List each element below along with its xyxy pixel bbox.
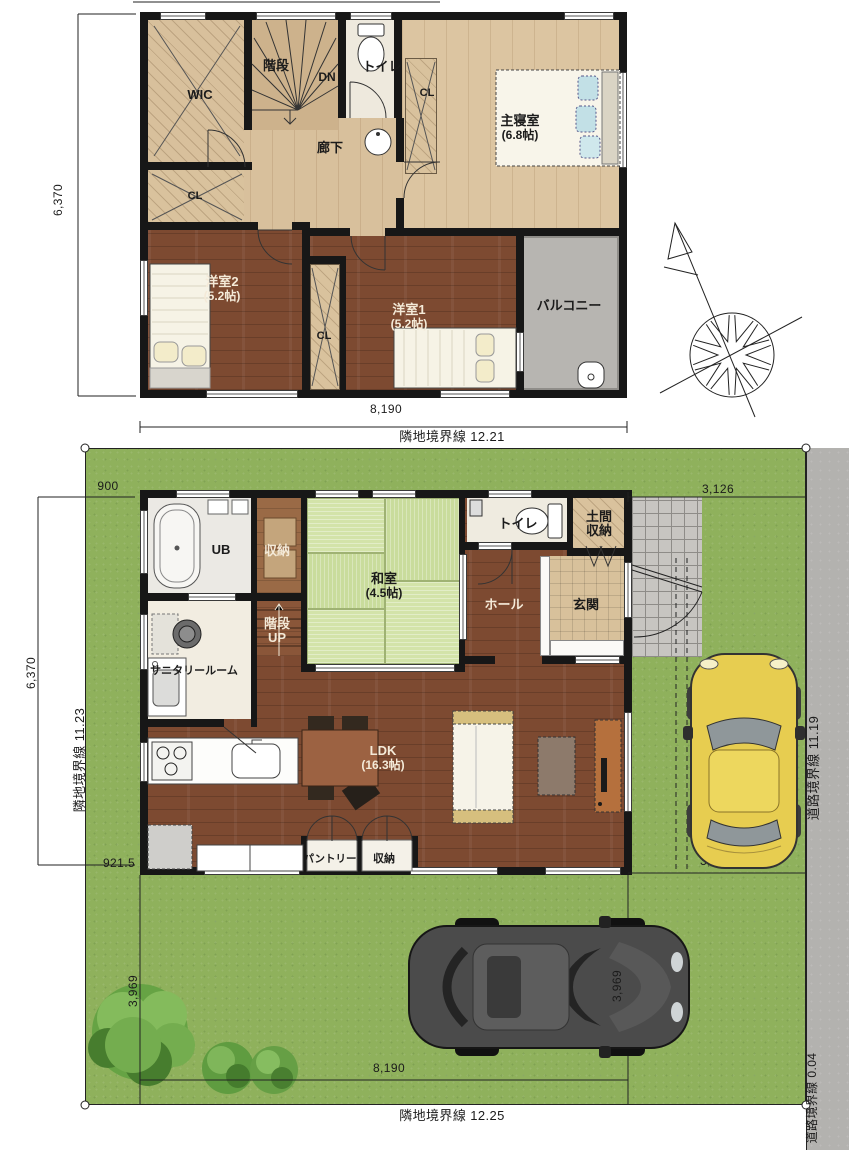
label-sanitary: サニタリールーム	[150, 664, 238, 678]
balcony	[516, 236, 619, 390]
label-doma: 土間収納	[586, 510, 612, 538]
wall	[357, 836, 362, 871]
window	[619, 72, 627, 168]
label-toilet-1f: トイレ	[498, 517, 537, 531]
door-toilet-1f	[478, 542, 512, 550]
wall	[385, 228, 619, 236]
window	[545, 867, 621, 875]
label-master: 主寝室(6.8帖)	[500, 114, 539, 142]
compass-axis-line	[675, 223, 755, 417]
dim-site-bottom: 8,190	[373, 1061, 405, 1075]
wall	[251, 601, 257, 727]
dim-1f-left: 6,370	[24, 657, 38, 689]
floor1-plan: UB 収納 和室(4.5帖) トイレ 土間収納 ホール 玄関 階段UP サニタリ…	[140, 490, 632, 875]
window	[564, 12, 614, 20]
label-ldk: LDK(16.3帖)	[361, 744, 404, 772]
label-toilet-2f: トイレ	[362, 60, 401, 74]
closet-mid	[310, 264, 340, 390]
window-ldk-slider	[624, 712, 632, 812]
label-stairs-2f: 階段	[263, 59, 289, 73]
dim-car-vertical: 3,969	[610, 970, 624, 1002]
garden-trees	[78, 970, 313, 1105]
floor2-plan: WIC 階段 DN トイレ CL 廊下 CL CL 主寝室(6.8帖) 洋室2(…	[140, 12, 627, 398]
label-ub: UB	[212, 543, 231, 557]
wall	[516, 236, 524, 332]
wall	[301, 490, 307, 597]
closet-master	[405, 58, 437, 174]
wall	[140, 12, 148, 398]
tree-medium	[202, 1042, 254, 1094]
wall	[140, 719, 224, 727]
window	[206, 390, 298, 398]
label-cl-wic: CL	[188, 189, 203, 203]
label-stairs-1f: 階段UP	[264, 617, 290, 645]
coffee-table	[538, 737, 575, 795]
tree-small	[250, 1046, 298, 1094]
dim-2f-left: 6,370	[51, 184, 65, 216]
boundary-label-bottom-right: 道路境界線 0.04	[805, 1053, 819, 1144]
sofa	[453, 711, 513, 823]
wall	[412, 836, 418, 871]
wall	[251, 490, 257, 601]
label-balcony: バルコニー	[537, 299, 602, 313]
tatami-mat	[307, 609, 385, 664]
label-storage-top: 収納	[264, 544, 290, 558]
boundary-label-left: 隣地境界線 11.23	[73, 708, 87, 813]
dim-site-top-right: 3,126	[702, 482, 734, 496]
label-pantry: パントリー	[303, 852, 356, 866]
wall	[465, 656, 495, 664]
car-dark	[403, 916, 695, 1058]
entrance-porch-tiles	[632, 497, 702, 657]
room-ub-bath	[148, 498, 251, 593]
north-flag	[668, 223, 692, 259]
dim-line-2f-bottom	[140, 421, 627, 433]
window	[440, 390, 510, 398]
refrigerator	[148, 825, 192, 869]
room-sanitary	[148, 601, 251, 719]
wall	[301, 597, 307, 664]
window	[315, 490, 359, 498]
label-yoshitsu1: 洋室1(5.2帖)	[391, 303, 428, 331]
door-washitsu-sliding	[459, 554, 467, 640]
label-wic: WIC	[187, 88, 212, 102]
boundary-label-right: 道路境界線 11.19	[807, 716, 821, 821]
window-balcony-slider	[516, 332, 524, 372]
window	[140, 260, 148, 316]
window	[176, 490, 230, 498]
genkan-step	[550, 640, 624, 656]
label-cl-master: CL	[420, 86, 435, 100]
basin-fixture-2f	[365, 129, 391, 155]
compass-cross-line	[660, 317, 802, 393]
boundary-label-top: 隣地境界線 12.21	[399, 430, 505, 444]
window	[140, 614, 148, 670]
wall	[244, 12, 252, 130]
wall	[140, 222, 258, 230]
label-yoshitsu2: 洋室2(5.2帖)	[204, 275, 241, 303]
dim-site-left-bottom: 921.5	[103, 856, 135, 870]
dim-tree-vertical: 3,969	[126, 975, 140, 1007]
window	[204, 867, 300, 875]
door-entrance	[624, 562, 632, 618]
label-genkan: 玄関	[573, 598, 599, 612]
label-cl-mid: CL	[317, 329, 332, 343]
dim-2f-bottom: 8,190	[370, 402, 402, 416]
tv-board	[595, 720, 621, 812]
boundary-label-bottom: 隣地境界線 12.25	[399, 1109, 505, 1123]
wall	[567, 490, 573, 554]
label-washitsu: 和室(4.5帖)	[366, 572, 403, 600]
wall	[302, 222, 310, 398]
window	[372, 490, 416, 498]
window	[575, 656, 620, 664]
window	[140, 742, 148, 782]
label-storage-bottom: 収納	[373, 852, 395, 866]
wall	[310, 256, 346, 264]
wall	[340, 264, 346, 390]
window	[160, 12, 206, 20]
window	[256, 12, 336, 20]
floor-plan-sheet: WIC 階段 DN トイレ CL 廊下 CL CL 主寝室(6.8帖) 洋室2(…	[0, 0, 849, 1150]
tatami-mat	[307, 498, 385, 553]
kitchen-counter	[148, 738, 298, 784]
genkan-step	[540, 556, 550, 656]
label-dn: DN	[318, 70, 335, 84]
wall	[338, 12, 346, 118]
window	[140, 510, 148, 574]
wall	[140, 162, 252, 170]
window	[410, 867, 498, 875]
wall	[619, 12, 627, 398]
door-washitsu-sliding	[315, 664, 455, 672]
wall	[396, 118, 404, 162]
dim-site-top-left: 900	[97, 479, 118, 493]
dim-bracket-2f-left	[78, 14, 136, 396]
wall	[516, 372, 524, 390]
wall	[396, 198, 404, 228]
wall	[567, 548, 628, 556]
tree-large	[88, 984, 195, 1086]
label-hall: ホール	[484, 598, 523, 612]
tatami-mat	[385, 498, 462, 581]
window	[350, 12, 392, 20]
window	[488, 490, 532, 498]
car-yellow	[683, 648, 805, 876]
door-ub-sliding	[188, 593, 236, 601]
wall	[302, 228, 350, 236]
north-arrow-compass	[650, 205, 810, 440]
room-yoshitsu2	[148, 230, 302, 390]
label-hallway: 廊下	[317, 141, 343, 155]
